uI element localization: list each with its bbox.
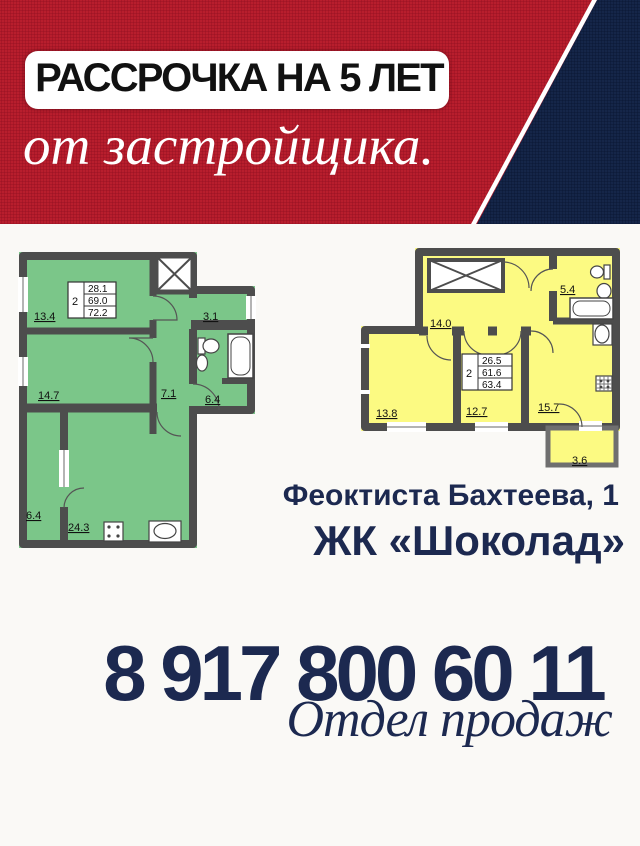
svg-text:2: 2 xyxy=(72,296,78,308)
svg-text:61.6: 61.6 xyxy=(482,368,502,379)
svg-text:28.1: 28.1 xyxy=(88,284,108,295)
svg-text:72.2: 72.2 xyxy=(88,308,108,319)
svg-text:14.7: 14.7 xyxy=(38,390,59,402)
svg-text:3.1: 3.1 xyxy=(203,311,218,323)
svg-text:63.4: 63.4 xyxy=(482,380,502,391)
svg-text:13.8: 13.8 xyxy=(376,408,397,420)
svg-text:7.1: 7.1 xyxy=(161,388,176,400)
svg-text:13.4: 13.4 xyxy=(34,311,55,323)
svg-text:14.0: 14.0 xyxy=(430,318,451,330)
svg-text:12.7: 12.7 xyxy=(466,406,487,418)
svg-text:69.0: 69.0 xyxy=(88,296,108,307)
svg-text:6.4: 6.4 xyxy=(205,394,220,406)
svg-text:2: 2 xyxy=(466,368,472,380)
svg-text:3.6: 3.6 xyxy=(572,455,587,467)
svg-text:15.7: 15.7 xyxy=(538,402,559,414)
svg-text:26.5: 26.5 xyxy=(482,356,502,367)
svg-text:5.4: 5.4 xyxy=(560,284,575,296)
